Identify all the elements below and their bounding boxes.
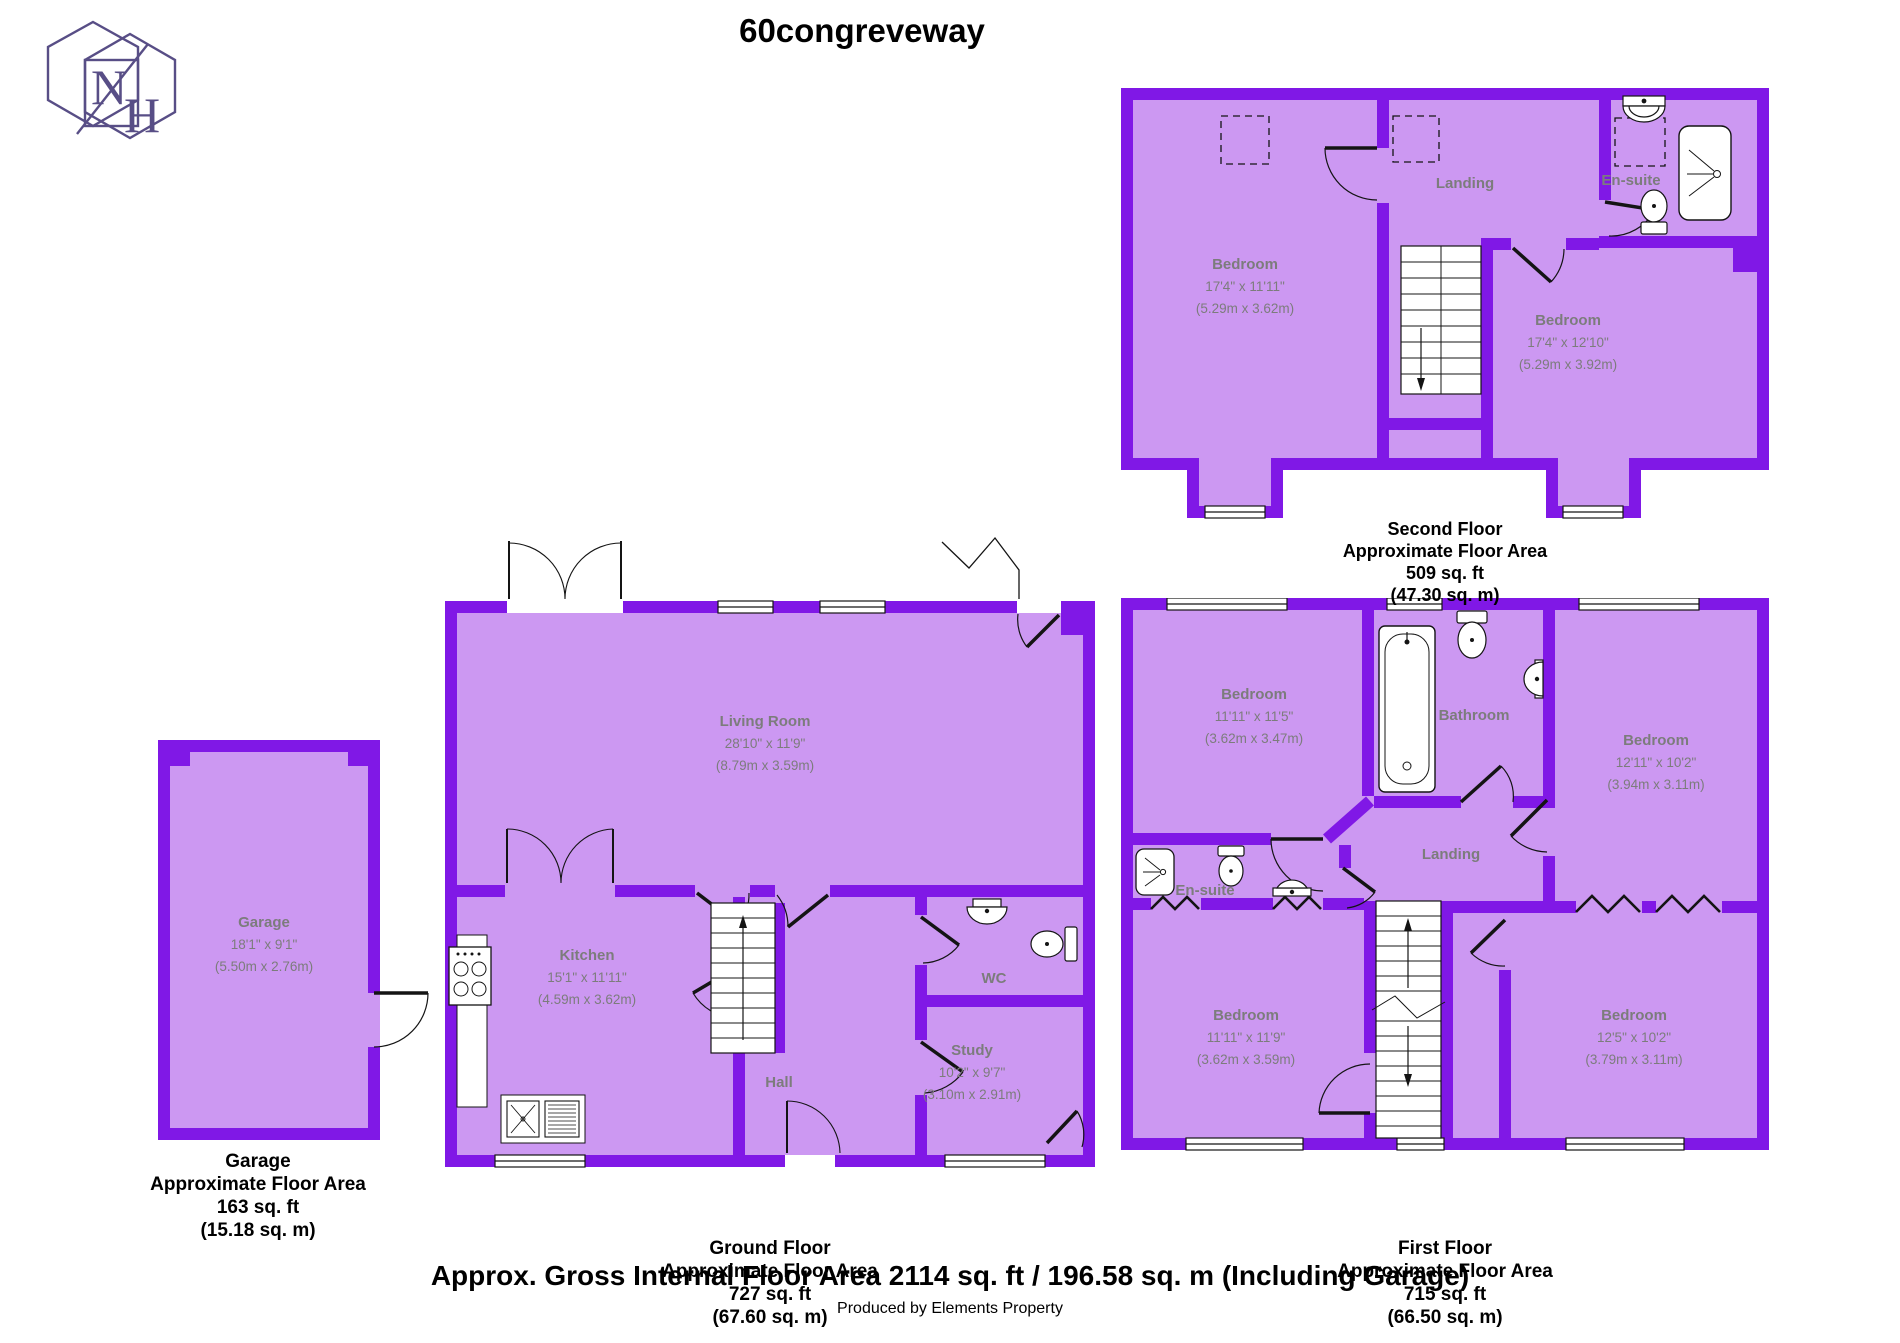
room-label-landing-second: Landing: [1415, 173, 1515, 195]
room-label-bedroom-second-right: Bedroom 17'4" x 12'10" (5.29m x 3.92m): [1488, 310, 1648, 376]
garage-door: [374, 993, 428, 1047]
room-label-bedroom-second-left: Bedroom 17'4" x 11'11" (5.29m x 3.62m): [1165, 254, 1325, 320]
room-label-hall: Hall: [729, 1072, 829, 1094]
room-label-landing-first: Landing: [1401, 844, 1501, 866]
logo-letter-h: H: [124, 87, 160, 143]
page-title: 60congreveway: [462, 12, 1262, 50]
stairs-down: [1401, 246, 1481, 394]
room-label-bedroom-back-left: Bedroom 11'11" x 11'9" (3.62m x 3.59m): [1166, 1005, 1326, 1071]
logo-letter-n: N: [91, 59, 127, 115]
produced-by-credit: Produced by Elements Property: [200, 1300, 1700, 1318]
stairs-main: [1372, 901, 1445, 1138]
rear-door-opening: [785, 1155, 835, 1167]
room-label-bathroom: Bathroom: [1419, 705, 1529, 727]
room-label-ensuite-second: En-suite: [1581, 170, 1681, 192]
ensuite-sink-icon: [1623, 96, 1665, 122]
room-label-wc: WC: [944, 968, 1044, 990]
logo-letters: N H: [91, 59, 160, 143]
gross-area-summary: Approx. Gross Internal Floor Area 2114 s…: [200, 1260, 1700, 1292]
room-label-living-room: Living Room 28'10" x 11'9" (8.79m x 3.59…: [685, 711, 845, 777]
room-label-kitchen: Kitchen 15'1" x 11'11" (4.59m x 3.62m): [507, 945, 667, 1011]
room-label-ensuite-first: En-suite: [1155, 880, 1255, 902]
room-label-bedroom-back-right: Bedroom 12'5" x 10'2" (3.79m x 3.11m): [1554, 1005, 1714, 1071]
room-label-bedroom-front-left: Bedroom 11'11" x 11'5" (3.62m x 3.47m): [1174, 684, 1334, 750]
french-doors: [509, 541, 621, 599]
garage-caption: Garage Approximate Floor Area 163 sq. ft…: [123, 1150, 393, 1242]
room-label-study: Study 10'2" x 9'7" (3.10m x 2.91m): [892, 1040, 1052, 1106]
second-floor-caption: Second Floor Approximate Floor Area 509 …: [1121, 518, 1769, 606]
room-label-garage: Garage 18'1" x 9'1" (5.50m x 2.76m): [184, 912, 344, 978]
garage-door-opening: [368, 993, 380, 1047]
french-door-opening: [507, 601, 623, 613]
front-door-opening: [1017, 601, 1061, 613]
stairs-up: [711, 903, 775, 1053]
bathroom-toilet-icon: [1457, 611, 1487, 658]
floorplan-page: { "title": "60congreveway", "logo": {"le…: [0, 0, 1900, 1343]
shower-icon: [1679, 126, 1731, 220]
porch-canopy-icon: [942, 538, 1019, 599]
agency-logo: N H: [30, 12, 190, 164]
toilet-icon: [1641, 190, 1667, 234]
door-arc: [374, 993, 428, 1047]
room-label-bedroom-front-right: Bedroom 12'11" x 10'2" (3.94m x 3.11m): [1576, 730, 1736, 796]
hob-icon: [449, 947, 491, 1005]
